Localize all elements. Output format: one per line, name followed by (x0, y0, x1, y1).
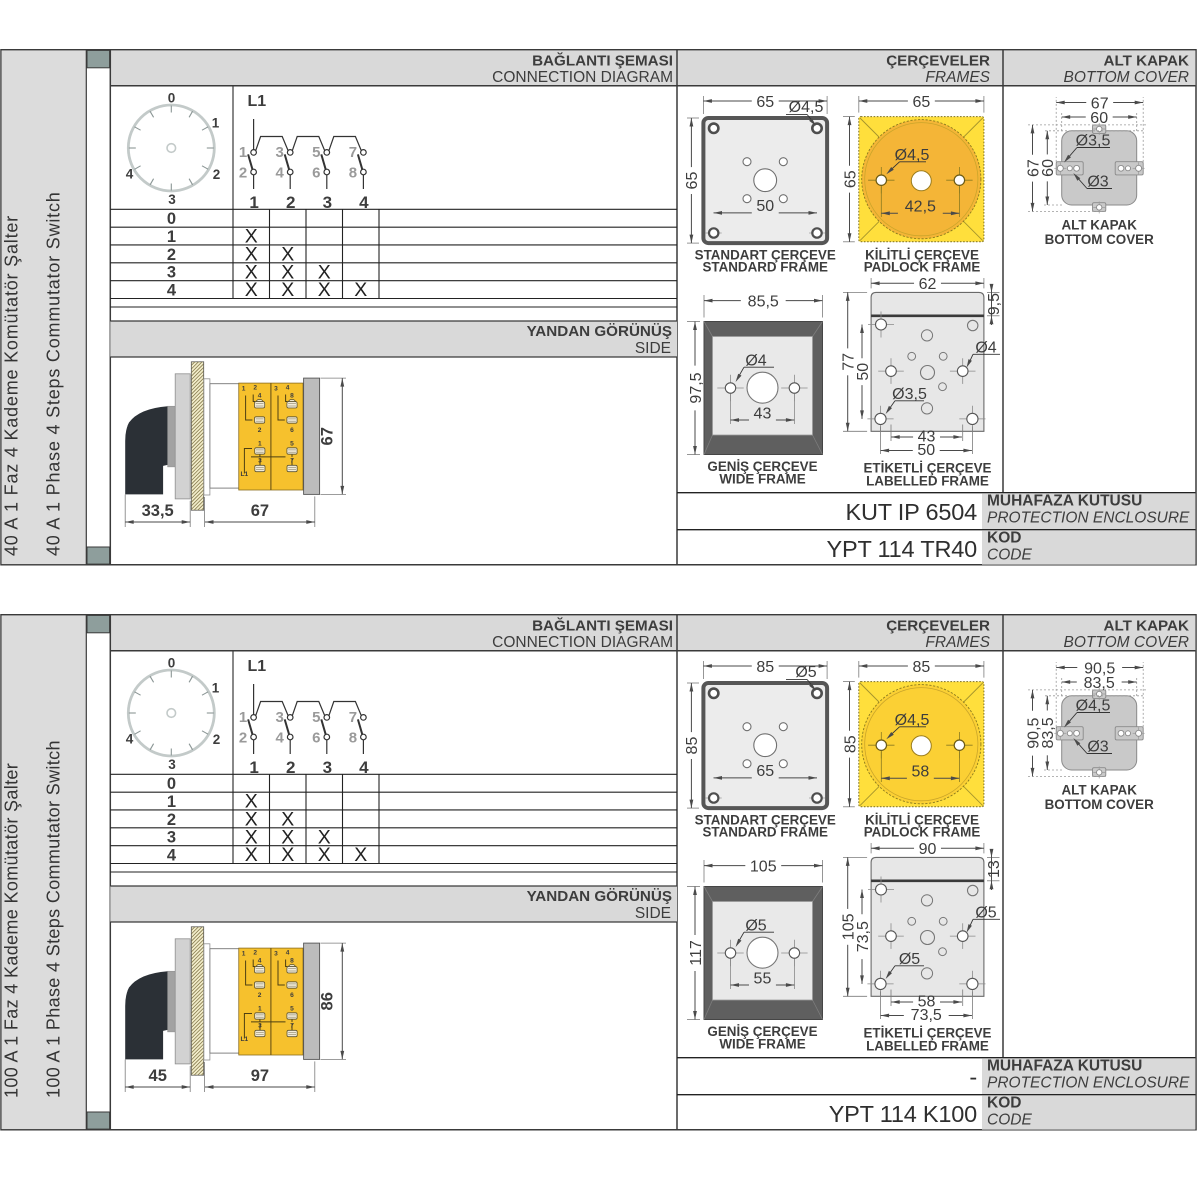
svg-text:0: 0 (168, 91, 176, 106)
svg-text:X: X (354, 844, 367, 866)
svg-text:40 A 1 Faz 4 Kademe Komütatör: 40 A 1 Faz 4 Kademe Komütatör Şalter (2, 215, 22, 556)
svg-text:BOTTOM COVER: BOTTOM COVER (1045, 232, 1154, 247)
svg-text:5: 5 (290, 440, 294, 447)
svg-text:X: X (318, 279, 331, 301)
svg-text:3: 3 (167, 264, 176, 282)
svg-text:CODE: CODE (987, 547, 1032, 564)
svg-text:4: 4 (167, 847, 177, 865)
svg-text:WIDE FRAME: WIDE FRAME (719, 472, 805, 487)
svg-text:2: 2 (258, 427, 262, 434)
svg-text:2: 2 (258, 992, 262, 999)
svg-text:45: 45 (149, 1067, 167, 1085)
svg-text:PADLOCK FRAME: PADLOCK FRAME (864, 260, 981, 275)
svg-text:2: 2 (213, 732, 221, 747)
svg-text:67: 67 (319, 427, 337, 445)
svg-text:CODE: CODE (987, 1112, 1032, 1129)
svg-text:0: 0 (168, 656, 176, 671)
svg-text:MUHAFAZA KUTUSU: MUHAFAZA KUTUSU (987, 1058, 1142, 1075)
svg-text:FRAMES: FRAMES (925, 69, 990, 86)
svg-text:6: 6 (290, 992, 294, 999)
svg-text:9,5: 9,5 (986, 293, 1003, 315)
svg-text:LABELLED FRAME: LABELLED FRAME (866, 1038, 989, 1053)
svg-text:PADLOCK FRAME: PADLOCK FRAME (864, 825, 981, 840)
svg-text:7: 7 (349, 709, 357, 726)
svg-text:43: 43 (754, 405, 772, 422)
svg-text:7: 7 (290, 457, 294, 464)
svg-text:SIDE: SIDE (635, 905, 671, 922)
svg-text:KOD: KOD (987, 1095, 1021, 1112)
svg-text:67: 67 (251, 502, 269, 520)
svg-text:4: 4 (167, 282, 177, 300)
svg-text:33,5: 33,5 (142, 502, 174, 520)
svg-text:85: 85 (756, 659, 774, 676)
svg-text:X: X (318, 844, 331, 866)
svg-text:5: 5 (312, 144, 320, 161)
svg-text:117: 117 (688, 940, 705, 966)
svg-text:105: 105 (750, 858, 777, 875)
svg-text:ALT KAPAK: ALT KAPAK (1062, 218, 1138, 233)
svg-text:0: 0 (167, 775, 176, 793)
svg-text:60: 60 (1090, 110, 1108, 127)
svg-text:8: 8 (349, 164, 357, 181)
svg-text:4: 4 (276, 164, 285, 181)
svg-text:X: X (245, 844, 258, 866)
svg-text:73,5: 73,5 (911, 1007, 942, 1024)
svg-text:4: 4 (258, 392, 262, 399)
svg-text:1: 1 (258, 1005, 262, 1012)
svg-text:Ø4,5: Ø4,5 (895, 147, 930, 164)
svg-text:2: 2 (239, 729, 247, 746)
svg-text:BOTTOM COVER: BOTTOM COVER (1064, 634, 1189, 651)
svg-text:PROTECTION ENCLOSURE: PROTECTION ENCLOSURE (987, 1075, 1190, 1092)
svg-text:8: 8 (290, 957, 294, 964)
svg-text:ALT KAPAK: ALT KAPAK (1104, 52, 1190, 69)
svg-text:3: 3 (168, 757, 176, 772)
svg-text:85: 85 (842, 735, 859, 753)
svg-text:5: 5 (290, 1005, 294, 1012)
svg-text:3: 3 (258, 457, 262, 464)
svg-text:X: X (281, 279, 294, 301)
svg-text:YANDAN GÖRÜNÜŞ: YANDAN GÖRÜNÜŞ (527, 323, 672, 340)
svg-text:KOD: KOD (987, 530, 1021, 547)
svg-text:65: 65 (756, 763, 774, 780)
svg-text:CONNECTION DIAGRAM: CONNECTION DIAGRAM (492, 634, 673, 651)
svg-text:40 A 1 Phase 4 Steps Commutato: 40 A 1 Phase 4 Steps Commutator Switch (44, 191, 64, 556)
svg-text:YPT 114 K100: YPT 114 K100 (829, 1101, 977, 1127)
svg-text:1: 1 (239, 709, 247, 726)
svg-text:4: 4 (286, 385, 290, 392)
svg-text:83,5: 83,5 (1084, 675, 1115, 692)
svg-text:6: 6 (312, 729, 320, 746)
svg-text:BOTTOM COVER: BOTTOM COVER (1045, 797, 1154, 812)
svg-text:KUT IP 6504: KUT IP 6504 (846, 499, 978, 525)
svg-text:0: 0 (167, 210, 176, 228)
svg-text:3: 3 (274, 386, 278, 393)
svg-text:1: 1 (167, 793, 176, 811)
svg-text:50: 50 (855, 363, 872, 381)
svg-text:6: 6 (290, 427, 294, 434)
svg-text:FRAMES: FRAMES (925, 634, 990, 651)
svg-text:2: 2 (253, 385, 257, 392)
svg-text:97: 97 (251, 1067, 269, 1085)
svg-text:BOTTOM COVER: BOTTOM COVER (1064, 69, 1189, 86)
svg-text:65: 65 (684, 172, 701, 190)
svg-text:1: 1 (258, 440, 262, 447)
svg-text:4: 4 (126, 732, 134, 747)
svg-text:2: 2 (167, 246, 176, 264)
svg-text:YPT 114 TR40: YPT 114 TR40 (827, 536, 978, 562)
svg-text:1: 1 (242, 951, 246, 958)
svg-text:86: 86 (319, 992, 337, 1010)
svg-text:73,5: 73,5 (855, 921, 872, 952)
svg-text:STANDARD FRAME: STANDARD FRAME (702, 825, 828, 840)
svg-text:PROTECTION ENCLOSURE: PROTECTION ENCLOSURE (987, 510, 1190, 527)
svg-text:65: 65 (756, 94, 774, 111)
svg-text:SIDE: SIDE (635, 340, 671, 357)
svg-text:WIDE FRAME: WIDE FRAME (719, 1037, 805, 1052)
svg-text:ÇERÇEVELER: ÇERÇEVELER (886, 52, 990, 69)
svg-text:L1: L1 (241, 1036, 249, 1043)
svg-text:4: 4 (286, 950, 290, 957)
svg-text:L1: L1 (241, 471, 249, 478)
svg-text:83,5: 83,5 (1040, 717, 1057, 748)
svg-text:60: 60 (1040, 159, 1057, 177)
svg-text:1: 1 (242, 386, 246, 393)
svg-text:-: - (969, 1064, 977, 1090)
svg-text:BAĞLANTI ŞEMASI: BAĞLANTI ŞEMASI (532, 51, 673, 69)
svg-text:CONNECTION DIAGRAM: CONNECTION DIAGRAM (492, 69, 673, 86)
svg-text:55: 55 (754, 970, 772, 987)
svg-text:85: 85 (684, 737, 701, 755)
svg-text:X: X (245, 279, 258, 301)
svg-text:1: 1 (212, 681, 220, 696)
svg-text:L1: L1 (248, 93, 267, 110)
svg-text:2: 2 (239, 164, 247, 181)
svg-text:3: 3 (276, 709, 284, 726)
svg-text:8: 8 (349, 729, 357, 746)
svg-text:97,5: 97,5 (688, 372, 705, 403)
svg-text:MUHAFAZA KUTUSU: MUHAFAZA KUTUSU (987, 493, 1142, 510)
svg-text:8: 8 (290, 392, 294, 399)
svg-text:STANDARD FRAME: STANDARD FRAME (702, 260, 828, 275)
svg-text:90: 90 (919, 841, 937, 858)
svg-text:7: 7 (349, 144, 357, 161)
svg-text:X: X (281, 844, 294, 866)
svg-text:58: 58 (911, 763, 929, 780)
svg-text:3: 3 (274, 951, 278, 958)
svg-text:100 A 1 Phase 4 Steps Commutat: 100 A 1 Phase 4 Steps Commutator Switch (44, 740, 64, 1098)
svg-text:42,5: 42,5 (905, 198, 936, 215)
svg-text:Ø4,5: Ø4,5 (789, 99, 824, 116)
svg-text:65: 65 (912, 94, 930, 111)
svg-text:50: 50 (917, 442, 935, 459)
svg-text:2: 2 (213, 167, 221, 182)
svg-text:3: 3 (276, 144, 284, 161)
svg-text:1: 1 (239, 144, 247, 161)
svg-text:13: 13 (986, 860, 1003, 878)
svg-text:BAĞLANTI ŞEMASI: BAĞLANTI ŞEMASI (532, 616, 673, 634)
svg-text:4: 4 (126, 167, 134, 182)
svg-text:ALT KAPAK: ALT KAPAK (1104, 617, 1190, 634)
svg-text:3: 3 (168, 192, 176, 207)
svg-text:Ø5: Ø5 (795, 664, 816, 681)
svg-text:2: 2 (167, 811, 176, 829)
svg-text:7: 7 (290, 1022, 294, 1029)
svg-text:5: 5 (312, 709, 320, 726)
svg-text:85,5: 85,5 (748, 293, 779, 310)
svg-text:3: 3 (258, 1022, 262, 1029)
svg-text:L1: L1 (248, 658, 267, 675)
svg-text:62: 62 (919, 276, 937, 293)
svg-text:ÇERÇEVELER: ÇERÇEVELER (886, 617, 990, 634)
svg-text:1: 1 (167, 228, 176, 246)
svg-text:X: X (354, 279, 367, 301)
svg-text:3: 3 (167, 829, 176, 847)
svg-text:2: 2 (253, 950, 257, 957)
svg-text:100 A 1 Faz 4 Kademe Komütatör: 100 A 1 Faz 4 Kademe Komütatör Şalter (2, 763, 22, 1098)
svg-text:50: 50 (756, 198, 774, 215)
svg-text:4: 4 (276, 729, 285, 746)
svg-text:6: 6 (312, 164, 320, 181)
svg-text:YANDAN GÖRÜNÜŞ: YANDAN GÖRÜNÜŞ (527, 888, 672, 905)
svg-text:ALT KAPAK: ALT KAPAK (1062, 783, 1138, 798)
svg-text:4: 4 (258, 957, 262, 964)
svg-text:85: 85 (912, 659, 930, 676)
svg-text:LABELLED FRAME: LABELLED FRAME (866, 473, 989, 488)
svg-text:1: 1 (212, 116, 220, 131)
svg-text:65: 65 (842, 170, 859, 188)
